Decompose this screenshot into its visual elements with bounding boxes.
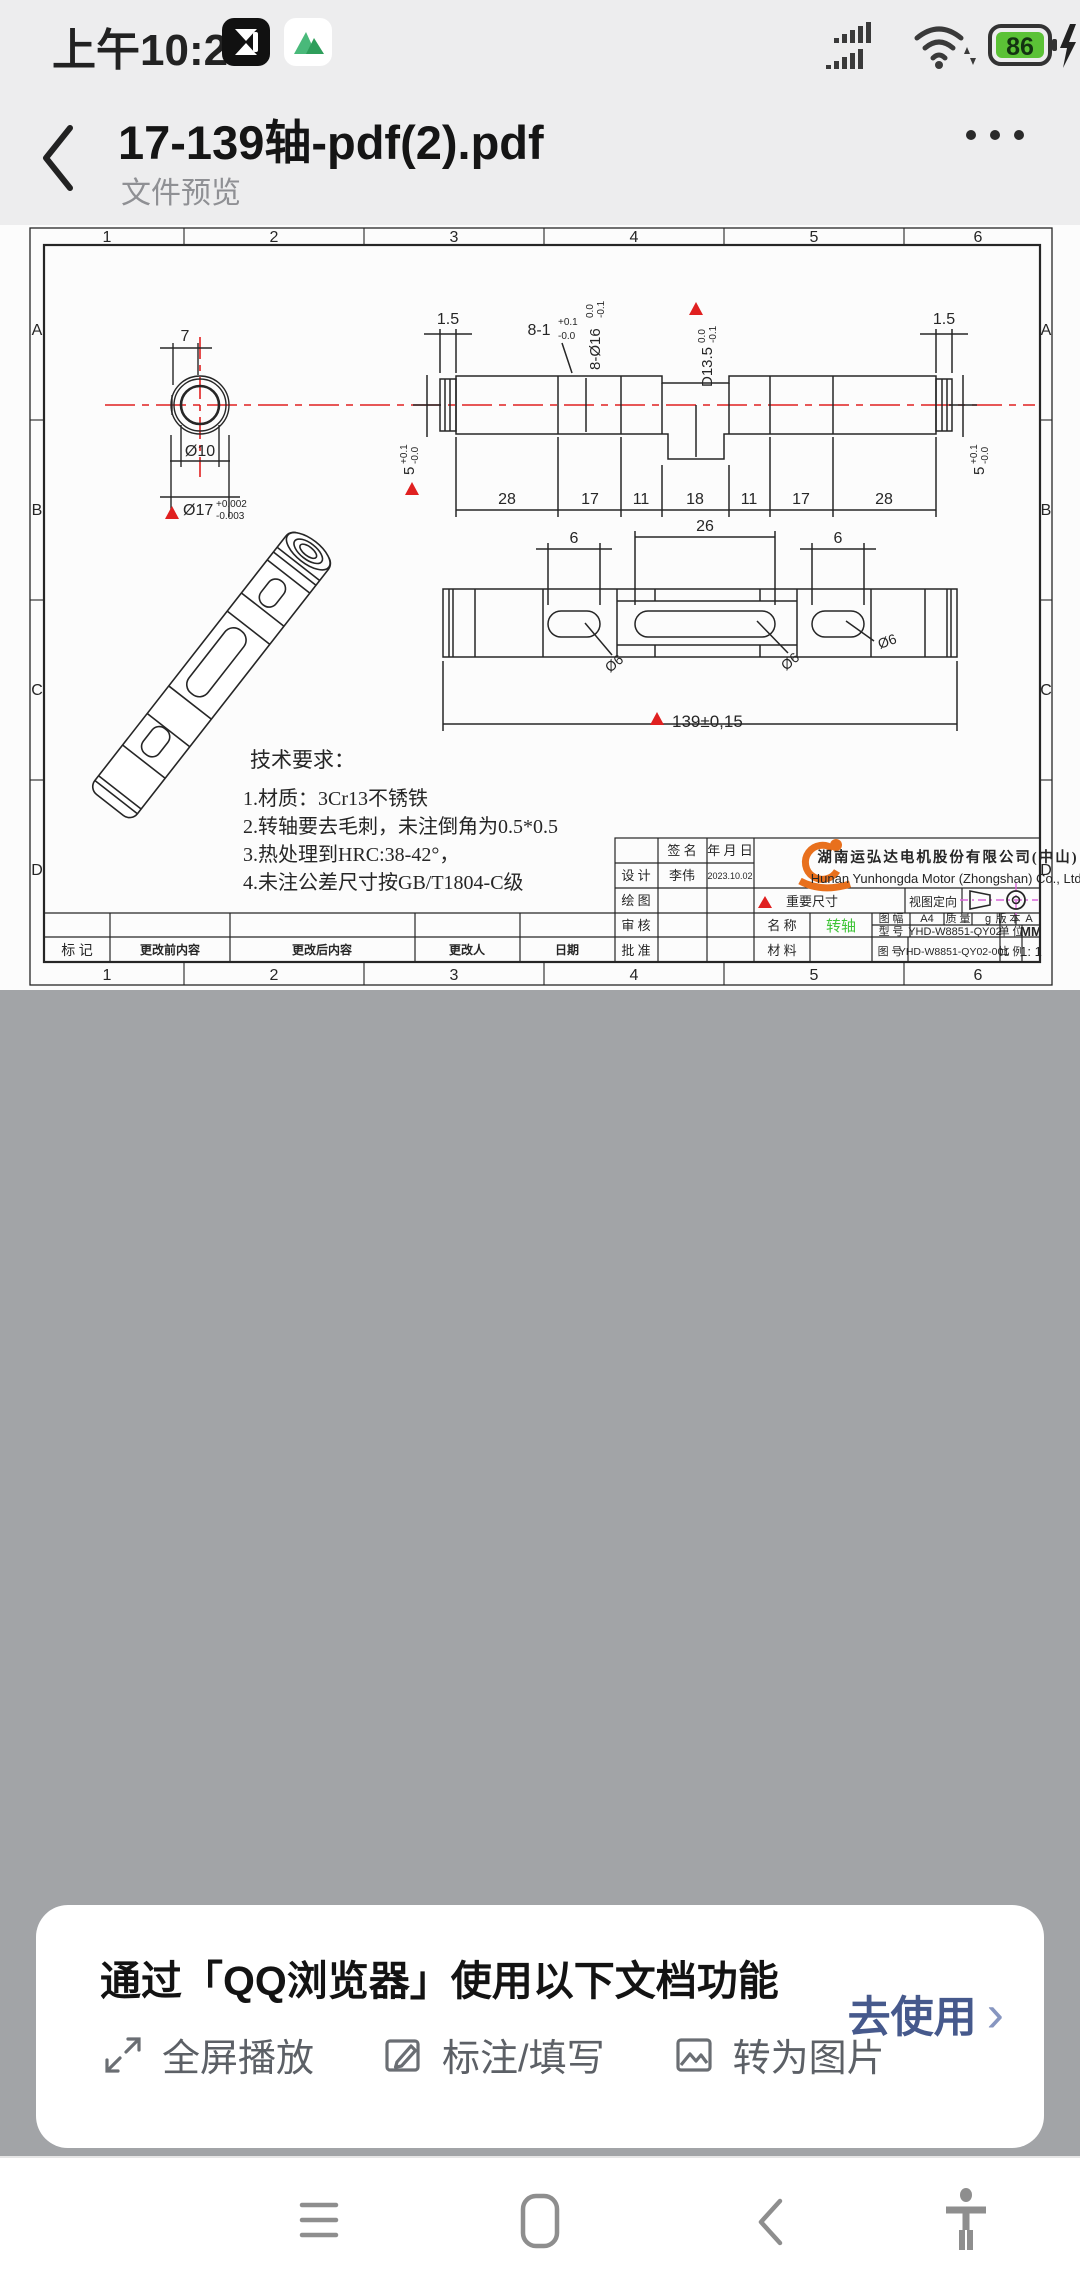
rev-after: 更改后内容	[292, 942, 352, 957]
tb-draw-label: 绘 图	[621, 893, 650, 908]
dim-d10: Ø10	[185, 443, 215, 460]
company-name-en: Hunan Yunhongda Motor (Zhongshan) Co., L…	[811, 871, 1080, 886]
zone-col: 5	[810, 967, 819, 984]
dia6-label: Ø6	[602, 651, 627, 675]
dim-6-left: 6	[570, 530, 579, 547]
annotate-icon	[380, 2032, 426, 2078]
back-button[interactable]	[30, 118, 86, 203]
dim-5-right: 5	[971, 467, 988, 475]
seg-11b: 11	[741, 491, 758, 508]
side-view: 1.5 1.5 8-1 28 17 11 18 11 17 28 +0.1 -0…	[399, 300, 991, 517]
end-view: 7 Ø10 Ø17 +0.002 -0.003	[160, 328, 247, 522]
tb-part-name: 转轴	[826, 918, 856, 935]
zone-col: 6	[974, 229, 983, 246]
dim-8d16-td: -0.1	[596, 300, 607, 318]
dim-26: 26	[696, 518, 714, 535]
tb-name-label: 名 称	[767, 918, 796, 933]
title-block: 签 名 年 月 日 设 计 李伟 2023.10.02 绘 图 审 核 批 准 …	[615, 838, 1080, 962]
dim-5r-tu: +0.1	[969, 444, 980, 464]
image-icon	[671, 2032, 717, 2078]
dim-6-right: 6	[834, 530, 843, 547]
seg-17: 17	[581, 491, 599, 508]
zone-row: B	[32, 502, 43, 519]
file-preview-label: 文件预览	[121, 168, 241, 212]
fullscreen-play-button[interactable]: 全屏播放	[100, 2027, 314, 2082]
zone-row: C	[31, 682, 43, 699]
company-name-cn: 湖南运弘达电机股份有限公司(中山)	[817, 848, 1078, 866]
important-dim-triangle	[165, 506, 179, 519]
zone-col: 2	[270, 229, 279, 246]
zone-col: 4	[630, 967, 639, 984]
dim-d17: Ø17	[183, 502, 213, 519]
mountain-notification-icon	[284, 18, 332, 66]
signal-icon	[822, 22, 908, 77]
more-menu-button[interactable]	[966, 130, 1024, 140]
zone-col: 3	[450, 229, 459, 246]
tb-unit-value: MM	[1020, 924, 1042, 939]
tb-drawno-value: YHD-W8851-QY02-001	[899, 946, 1009, 958]
top-chrome: 上午10:26	[0, 0, 1080, 227]
slot-tol-dn: -0.0	[558, 331, 576, 342]
android-nav-bar	[0, 2156, 1080, 2280]
dia6-label: Ø6	[876, 630, 899, 651]
battery-percent: 86	[1006, 33, 1034, 61]
tb-important-label: 重要尺寸	[786, 894, 838, 909]
annotate-fill-button[interactable]: 标注/填写	[380, 2027, 605, 2082]
tb-model-value: YHD-W8851-QY02	[908, 926, 1002, 938]
wifi-icon	[912, 20, 978, 77]
tb-designer: 李伟	[669, 868, 695, 883]
dim-5-left: 5	[401, 467, 418, 475]
tb-sign-header: 签 名	[667, 843, 696, 858]
dim-end-right: 1.5	[933, 311, 955, 328]
seg-28: 28	[498, 491, 516, 508]
revision-strip: 标 记 更改前内容 更改后内容 更改人 日期	[44, 913, 615, 962]
important-dim-triangle	[650, 712, 664, 725]
file-title: 17-139轴-pdf(2).pdf	[118, 104, 958, 173]
zone-col: 1	[103, 967, 112, 984]
dim-overall-139: 139±0,15	[672, 712, 743, 731]
fullscreen-icon	[100, 2032, 146, 2078]
dim-d13-5-tu: 0.0	[697, 329, 708, 343]
zone-col: 5	[810, 229, 819, 246]
dim-d17-tol-up: +0.002	[216, 499, 247, 510]
important-dim-triangle	[758, 896, 772, 908]
slot-tol-up: +0.1	[558, 317, 578, 328]
tb-approve-label: 批 准	[621, 943, 650, 958]
zone-row: A	[32, 322, 43, 339]
rev-mark: 标 记	[61, 943, 93, 959]
tb-format-label: 图 幅	[879, 912, 904, 925]
tb-scale-value: 1: 1	[1020, 944, 1042, 959]
tb-review-label: 审 核	[621, 918, 650, 933]
dim-7: 7	[181, 328, 190, 345]
chevron-right-icon: ›	[987, 1994, 1004, 2034]
dim-5r-td: -0.0	[980, 446, 991, 464]
tb-design-label: 设 计	[621, 868, 650, 883]
home-button[interactable]	[518, 2192, 562, 2255]
tb-model-label: 型 号	[879, 924, 904, 938]
seg-11: 11	[633, 491, 650, 508]
rev-before: 更改前内容	[140, 942, 200, 957]
zone-col: 2	[270, 967, 279, 984]
top-view: 6 26 6 Ø6 Ø6 Ø6 139±0,15	[443, 518, 957, 731]
dim-8d16-tu: 0.0	[585, 304, 596, 318]
pdf-page[interactable]: 1 2 3 4 5 6 1 2 3 4 5 6 A B C D A B C D	[0, 225, 1080, 990]
recents-button[interactable]	[296, 2200, 342, 2247]
zone-col: 3	[450, 967, 459, 984]
action-label: 全屏播放	[162, 2027, 314, 2082]
tb-design-date: 2023.10.02	[707, 871, 752, 881]
action-label: 标注/填写	[442, 2027, 605, 2082]
zone-col: 4	[630, 229, 639, 246]
important-dim-triangle	[689, 302, 703, 315]
tech-requirements: 技术要求： 1.材质：3Cr13不锈铁 2.转轴要去毛刺，未注倒角为0.5*0.…	[243, 748, 558, 894]
dim-d17-tol-dn: -0.003	[216, 511, 245, 522]
dim-8d16: 8-Ø16	[587, 328, 604, 370]
seg-28b: 28	[875, 491, 893, 508]
action-label: 转为图片	[733, 2027, 885, 2082]
convert-to-image-button[interactable]: 转为图片	[671, 2027, 885, 2082]
tech-line-1: 1.材质：3Cr13不锈铁	[243, 787, 428, 810]
seg-17b: 17	[792, 491, 810, 508]
accessibility-shortcut-icon[interactable]	[938, 2186, 994, 2261]
seg-18: 18	[686, 491, 704, 508]
isometric-view	[89, 525, 337, 821]
rev-who: 更改人	[449, 942, 486, 957]
battery-icon: 86	[988, 22, 1080, 75]
tech-line-4: 4.未注公差尺寸按GB/T1804-C级	[243, 871, 524, 894]
zone-row: D	[31, 862, 43, 879]
zone-row: A	[1041, 322, 1052, 339]
dia6-label: Ø6	[778, 649, 803, 673]
dim-d13-5-td: -0.1	[708, 325, 719, 343]
tech-line-2: 2.转轴要去毛刺，未注倒角为0.5*0.5	[243, 815, 558, 838]
capcut-notification-icon	[222, 18, 270, 66]
tb-format-value: A4	[920, 913, 933, 925]
qq-browser-bottom-sheet: 通过「QQ浏览器」使用以下文档功能 去使用 › 全屏播放	[36, 1905, 1044, 2148]
important-dim-triangle	[405, 482, 419, 495]
zone-row: B	[1041, 502, 1052, 519]
phone-screen: 上午10:26	[0, 0, 1080, 2280]
tb-material-label: 材 料	[767, 943, 796, 958]
sheet-title: 通过「QQ浏览器」使用以下文档功能	[100, 1947, 779, 2007]
tech-title: 技术要求：	[250, 748, 355, 772]
dim-end-left: 1.5	[437, 311, 459, 328]
zone-row: C	[1040, 682, 1052, 699]
tb-date-header: 年 月 日	[707, 843, 753, 858]
centerlines	[105, 337, 1035, 477]
zone-col: 1	[103, 229, 112, 246]
back-nav-button[interactable]	[752, 2196, 788, 2253]
tb-mass-label: 质 量	[946, 912, 971, 925]
tech-line-3: 3.热处理到HRC:38-42°，	[243, 843, 459, 866]
zone-col: 6	[974, 967, 983, 984]
tb-orient-label: 视图定向	[909, 894, 957, 909]
tb-mass-value: g	[985, 913, 991, 925]
shaft-drawing: 1 2 3 4 5 6 1 2 3 4 5 6 A B C D A B C D	[0, 225, 1080, 990]
dim-slot8-1: 8-1	[527, 322, 550, 339]
rev-date: 日期	[555, 942, 579, 957]
dim-5l-td: -0.0	[410, 446, 421, 464]
dim-5l-tu: +0.1	[399, 444, 410, 464]
dim-d13-5: D13.5	[699, 347, 716, 387]
